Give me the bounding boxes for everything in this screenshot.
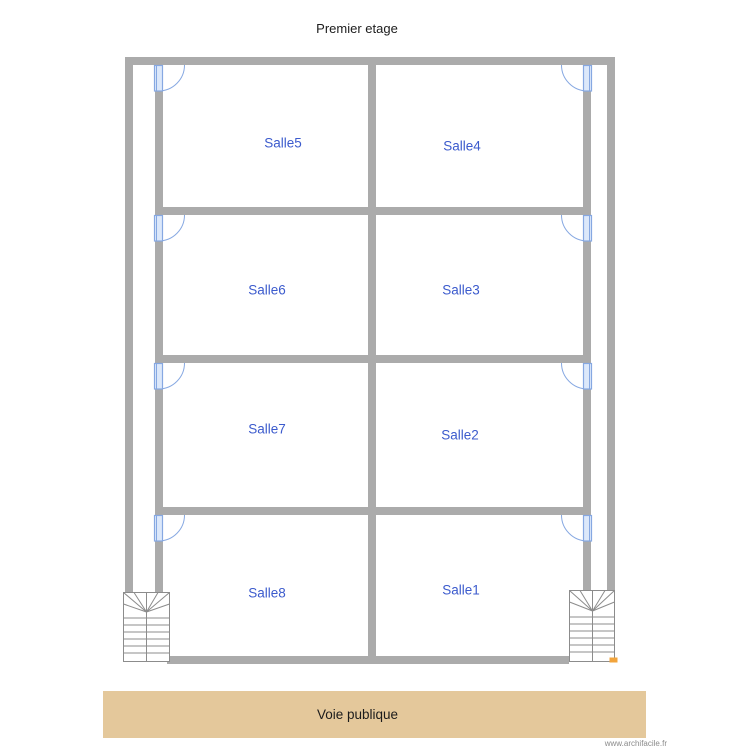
corner-marker	[610, 658, 618, 663]
room-label-salle3: Salle3	[442, 283, 480, 298]
room-label-salle5: Salle5	[264, 136, 302, 151]
wall-divider-3	[155, 507, 591, 515]
plan-title: Premier etage	[107, 21, 607, 36]
wall-divider-1	[155, 207, 591, 215]
room-label-salle4: Salle4	[443, 139, 481, 154]
wall-bottom	[167, 656, 569, 664]
public-road-label: Voie publique	[317, 707, 398, 722]
room-label-salle8: Salle8	[248, 586, 286, 601]
room-label-salle6: Salle6	[248, 283, 286, 298]
public-road-band: Voie publique	[103, 691, 646, 738]
room-label-salle2: Salle2	[441, 428, 479, 443]
floor-plan-page: Premier etage	[0, 0, 750, 750]
room-label-salle1: Salle1	[442, 583, 480, 598]
right-staircase	[570, 591, 615, 662]
wall-right-outer	[607, 57, 615, 592]
room-label-salle7: Salle7	[248, 422, 286, 437]
left-staircase	[124, 593, 170, 662]
wall-left-outer	[125, 57, 133, 592]
watermark: www.archifacile.fr	[0, 739, 667, 748]
wall-divider-2	[155, 355, 591, 363]
